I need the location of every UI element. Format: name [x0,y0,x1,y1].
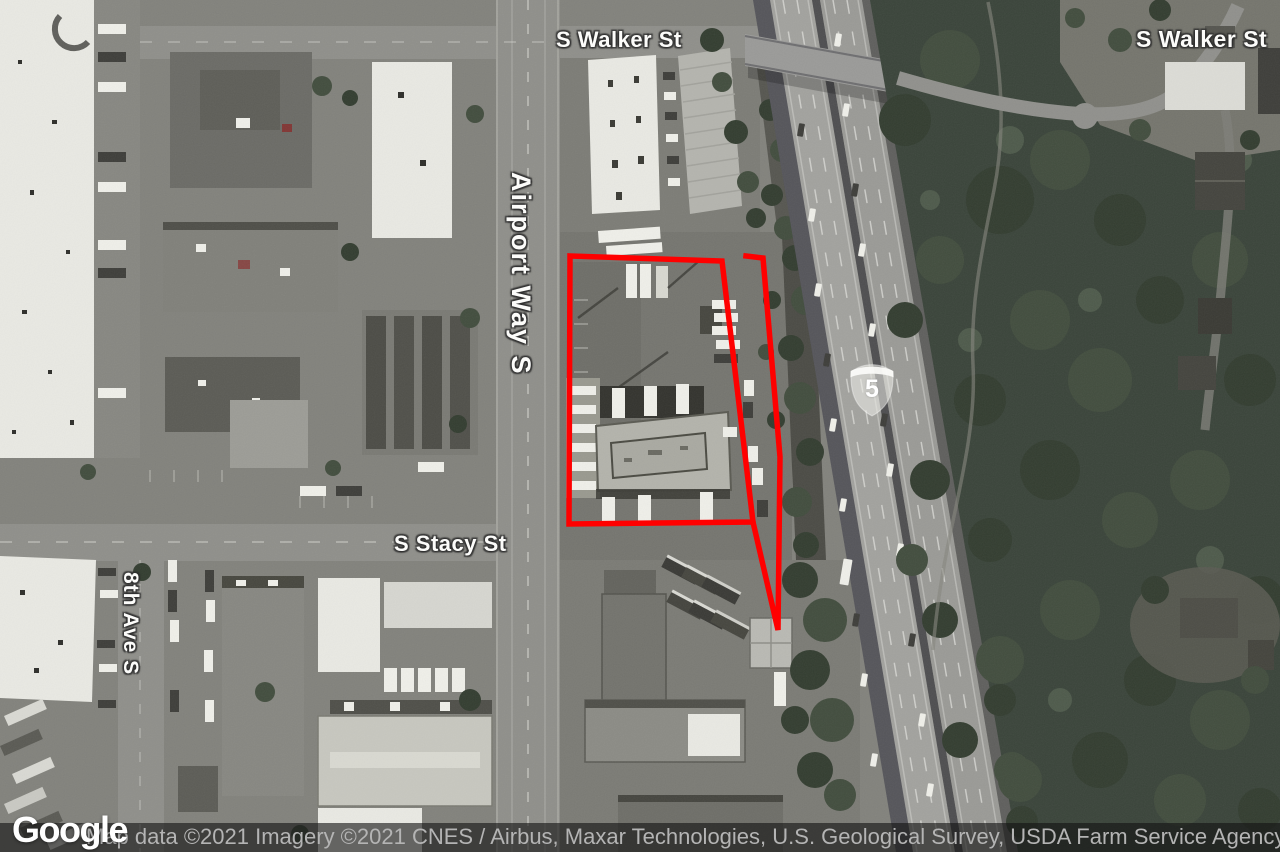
image-grain [0,0,1280,852]
interstate-route-number: 5 [849,375,895,404]
attribution-bar: Map data ©2021 Imagery ©2021 CNES / Airb… [0,823,1280,852]
road-label-s-walker-st-west: S Walker St [556,27,682,53]
google-logo[interactable]: Google [12,809,127,851]
satellite-imagery [0,0,1280,852]
map-canvas[interactable]: S Walker St S Walker St Airport Way S S … [0,0,1280,852]
road-label-8th-ave-s: 8th Ave S [118,572,142,675]
attribution-text: Map data ©2021 Imagery ©2021 CNES / Airb… [86,822,1280,851]
road-label-airport-way-s: Airport Way S [505,172,536,376]
road-label-s-stacy-st: S Stacy St [394,531,507,557]
road-label-s-walker-st-east: S Walker St [1136,26,1267,53]
interstate-5-shield: 5 [849,362,895,418]
